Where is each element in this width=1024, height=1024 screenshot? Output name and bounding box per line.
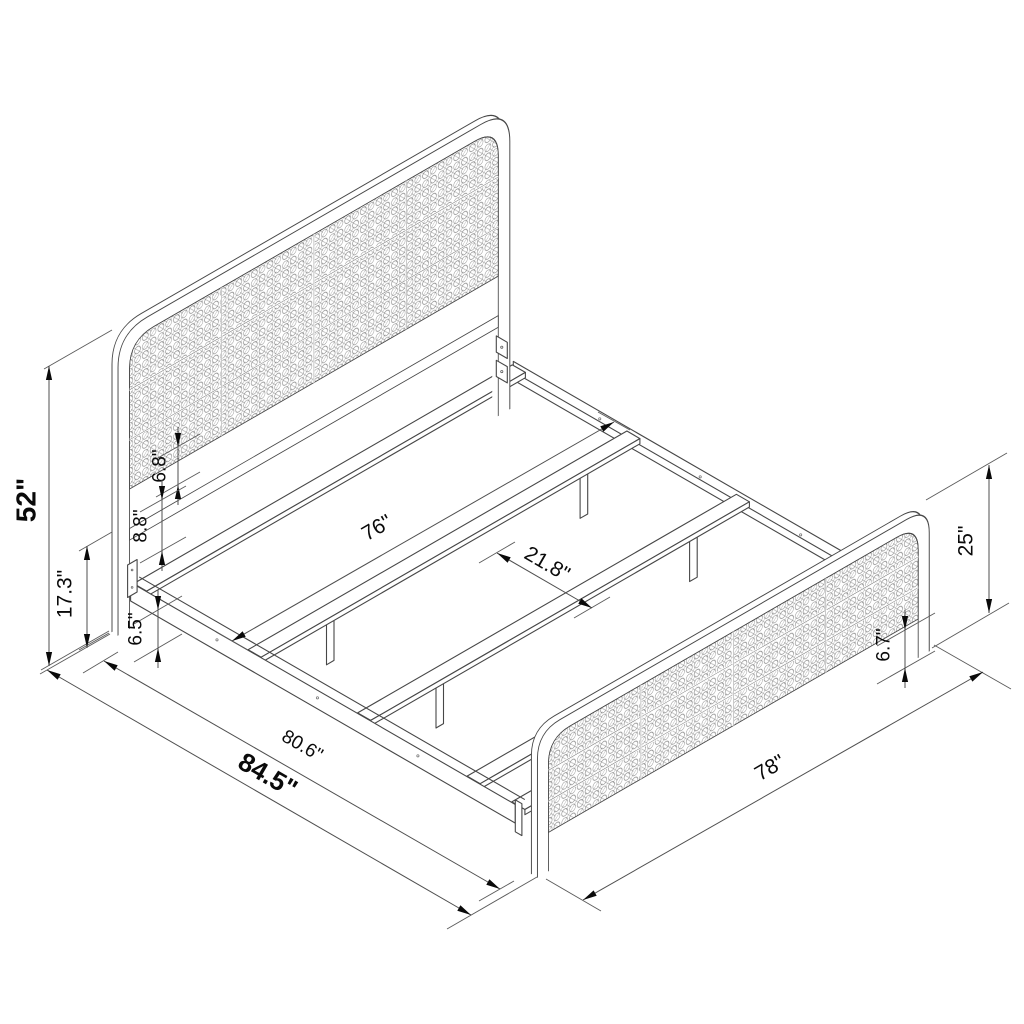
dimension-label-crossbar-to-panel-gap: 6.8" bbox=[150, 449, 171, 482]
dimension-label-inner-slat-length: 76" bbox=[358, 510, 396, 545]
dimension-label-slat-spacing: 21.8" bbox=[520, 542, 573, 586]
dimension-label-footboard-height: 25" bbox=[955, 526, 978, 557]
dimension-floor-to-crossbar: 17.3" bbox=[54, 532, 113, 650]
dimension-label-footboard-panel-clearance: 6.7" bbox=[874, 628, 895, 661]
dimension-label-floor-to-crossbar: 17.3" bbox=[54, 570, 77, 618]
dimension-label-overall-width: 78" bbox=[751, 750, 789, 785]
footboard bbox=[531, 503, 929, 878]
dimension-label-floor-to-rail-clearance: 6.5" bbox=[126, 612, 147, 645]
headboard bbox=[112, 104, 510, 635]
isometric-bed-drawing: 52"17.3"6.8"8.8"6.5"76"21.8"80.6"84.5"78… bbox=[0, 0, 1024, 1024]
dimension-footboard-height: 25" bbox=[926, 453, 1009, 648]
dimension-label-headboard-height: 52" bbox=[11, 478, 42, 522]
bed-frame-dimension-diagram: 52"17.3"6.8"8.8"6.5"76"21.8"80.6"84.5"78… bbox=[0, 0, 1024, 1024]
dimension-label-frame-length: 80.6" bbox=[278, 726, 326, 766]
cross-slat bbox=[248, 431, 640, 663]
dimension-label-rail-to-panel-gap: 8.8" bbox=[131, 509, 152, 542]
